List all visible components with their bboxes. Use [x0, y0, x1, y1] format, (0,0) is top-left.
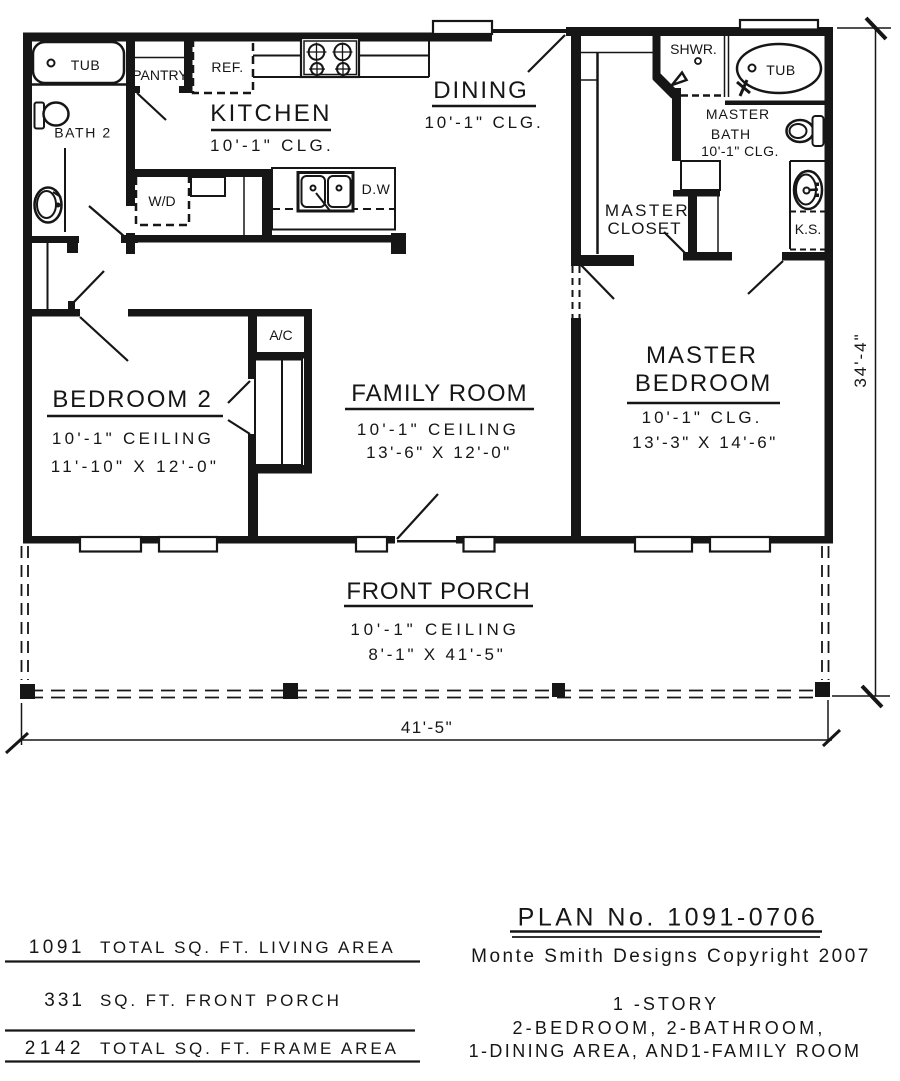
svg-text:2-BEDROOM, 2-BATHROOM,: 2-BEDROOM, 2-BATHROOM,	[512, 1018, 825, 1038]
svg-text:FRONT PORCH: FRONT PORCH	[346, 578, 530, 605]
svg-text:BEDROOM: BEDROOM	[635, 370, 772, 397]
svg-text:K.S.: K.S.	[795, 221, 821, 237]
svg-text:SHWR.: SHWR.	[670, 41, 717, 57]
svg-text:13'-6" X 12'-0": 13'-6" X 12'-0"	[366, 443, 512, 462]
svg-text:PANTRY: PANTRY	[132, 67, 188, 83]
svg-text:MASTER: MASTER	[706, 106, 770, 122]
svg-text:Monte Smith Designs Copyright: Monte Smith Designs Copyright 2007	[471, 946, 871, 967]
svg-text:SQ. FT. FRONT PORCH: SQ. FT. FRONT PORCH	[100, 991, 342, 1010]
svg-text:2142: 2142	[25, 1038, 85, 1059]
svg-text:331: 331	[44, 990, 85, 1011]
svg-text:W/D: W/D	[148, 193, 175, 209]
svg-text:10'-1" CEILING: 10'-1" CEILING	[52, 429, 214, 448]
svg-text:10'-1" CEILING: 10'-1" CEILING	[350, 620, 519, 639]
svg-text:41'-5": 41'-5"	[401, 718, 453, 737]
svg-text:11'-10" X 12'-0": 11'-10" X 12'-0"	[51, 457, 219, 476]
svg-text:FAMILY ROOM: FAMILY ROOM	[351, 380, 528, 407]
svg-text:BEDROOM 2: BEDROOM 2	[52, 386, 212, 413]
svg-text:CLOSET: CLOSET	[607, 219, 681, 238]
svg-text:TUB: TUB	[71, 57, 101, 73]
svg-text:D.W: D.W	[362, 181, 391, 197]
svg-text:34'-4": 34'-4"	[851, 332, 870, 387]
svg-text:A/C: A/C	[269, 327, 292, 343]
svg-text:MASTER: MASTER	[646, 342, 758, 369]
svg-text:BATH 2: BATH 2	[54, 125, 112, 141]
svg-text:TOTAL SQ. FT. FRAME AREA: TOTAL SQ. FT. FRAME AREA	[100, 1039, 399, 1058]
svg-text:1 -STORY: 1 -STORY	[613, 994, 719, 1014]
svg-text:1091: 1091	[29, 937, 85, 958]
svg-text:8'-1" X 41'-5": 8'-1" X 41'-5"	[368, 645, 505, 664]
svg-text:KITCHEN: KITCHEN	[210, 100, 331, 127]
svg-text:DINING: DINING	[433, 77, 528, 104]
svg-text:PLAN No. 1091-0706: PLAN No. 1091-0706	[518, 904, 819, 932]
svg-text:10'-1" CLG.: 10'-1" CLG.	[701, 143, 779, 159]
svg-text:10'-1" CLG.: 10'-1" CLG.	[642, 408, 763, 427]
svg-text:MASTER: MASTER	[605, 201, 690, 220]
svg-text:1-DINING AREA, AND1-FAMILY ROO: 1-DINING AREA, AND1-FAMILY ROOM	[469, 1041, 862, 1061]
svg-text:TOTAL SQ. FT. LIVING AREA: TOTAL SQ. FT. LIVING AREA	[100, 938, 395, 957]
svg-text:TUB: TUB	[766, 62, 796, 78]
svg-text:10'-1" CEILING: 10'-1" CEILING	[357, 420, 519, 439]
svg-text:BATH: BATH	[711, 126, 751, 142]
svg-text:REF.: REF.	[211, 59, 243, 75]
svg-text:13'-3" X 14'-6": 13'-3" X 14'-6"	[632, 433, 778, 452]
svg-text:10'-1" CLG.: 10'-1" CLG.	[424, 113, 543, 132]
svg-text:10'-1" CLG.: 10'-1" CLG.	[210, 136, 334, 155]
